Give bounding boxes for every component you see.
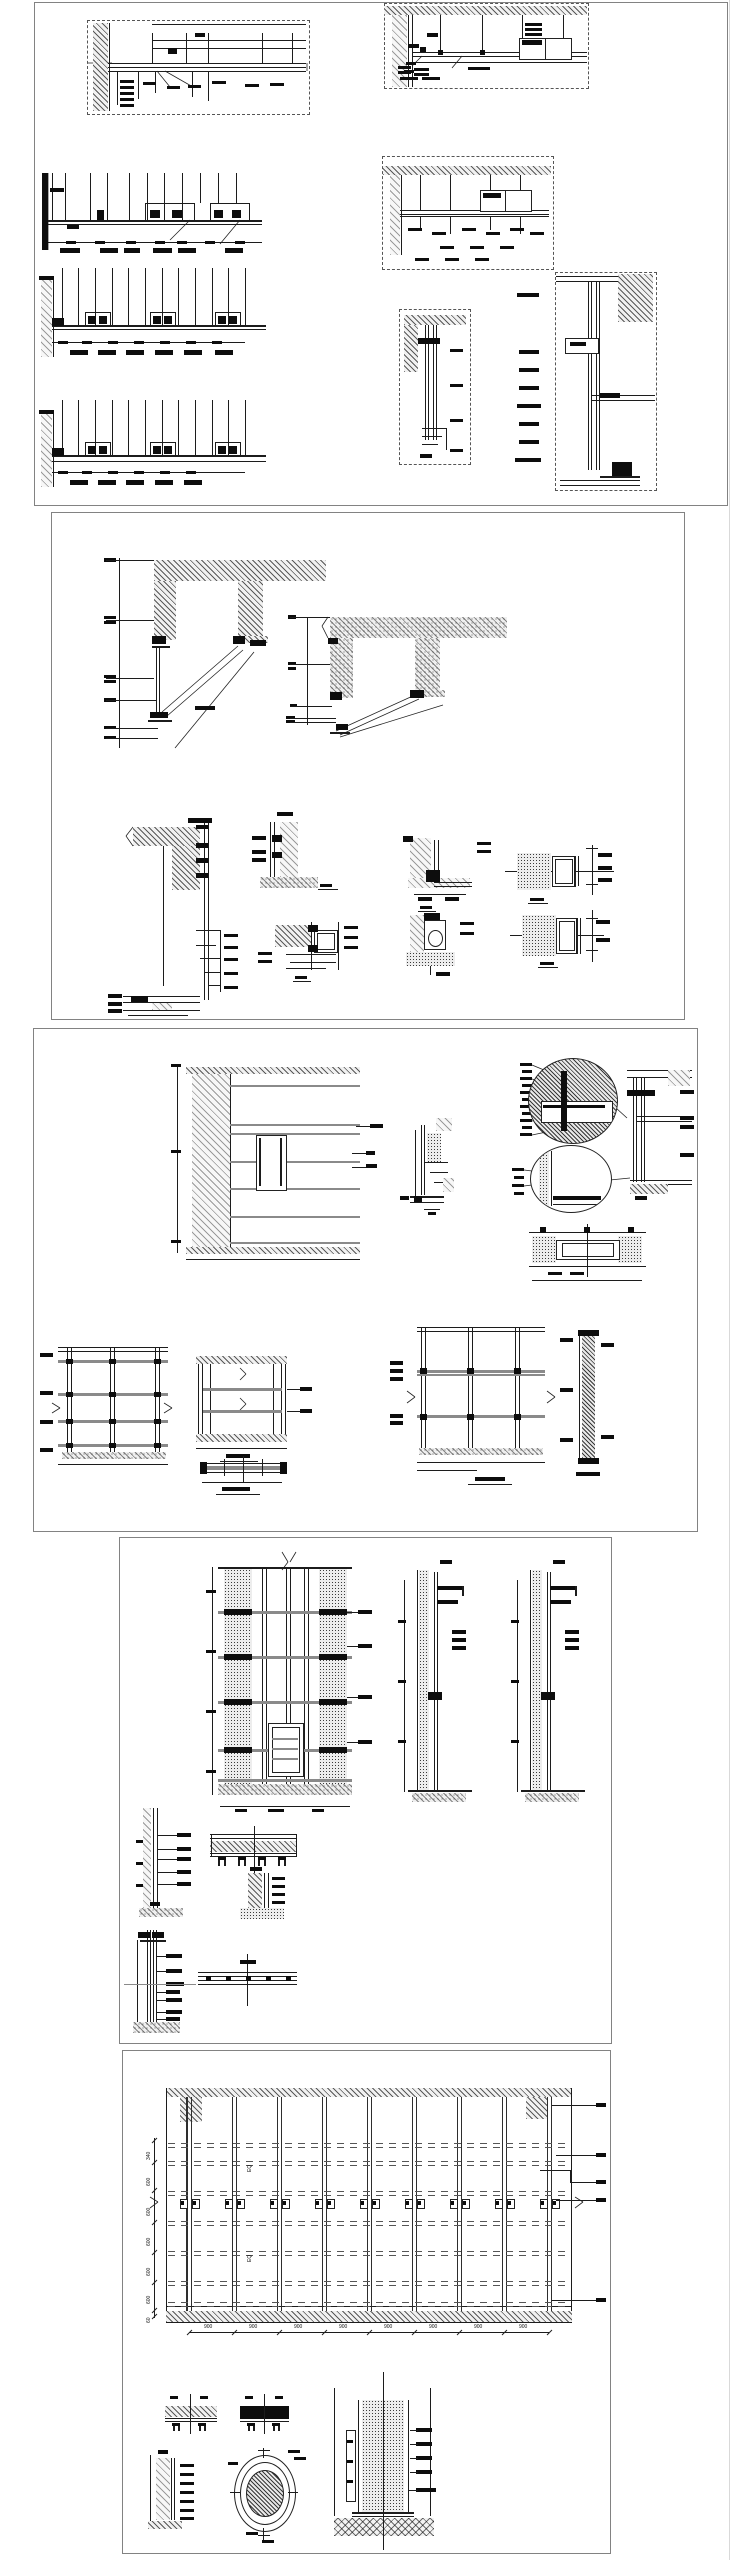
cad-line <box>417 1570 418 1790</box>
label-bar <box>514 1192 524 1195</box>
label-bar <box>480 50 485 55</box>
label-bar <box>570 1272 584 1275</box>
cad-line <box>52 325 266 327</box>
detail-bubble-hatched <box>528 1058 618 1144</box>
cad-line <box>556 2155 600 2156</box>
label-bar <box>104 616 116 619</box>
label-bar <box>432 232 446 235</box>
label-bar <box>167 86 180 89</box>
cad-line <box>243 1456 244 1482</box>
glazing-dashed-row <box>168 2302 570 2307</box>
label-bar <box>530 898 544 901</box>
cad-line <box>422 444 438 445</box>
cad-line <box>58 1347 168 1348</box>
label-bar <box>358 1740 372 1744</box>
cad-line <box>437 1572 438 1790</box>
label-bar <box>366 1164 377 1168</box>
label-bar <box>414 1196 422 1202</box>
label-bar <box>172 210 182 218</box>
cad-line <box>258 2450 270 2451</box>
cad-line <box>408 1790 472 1792</box>
cad-line <box>52 461 266 462</box>
cad-line <box>190 2394 191 2434</box>
label-bar <box>272 1877 285 1880</box>
cad-line <box>556 281 618 282</box>
cad-line <box>418 911 436 912</box>
cad-line <box>145 203 195 204</box>
label-bar <box>406 62 416 65</box>
hatch-region <box>238 581 263 640</box>
label-bar <box>414 68 429 71</box>
fastener-circle <box>428 930 443 947</box>
dim-label: EQ <box>248 2255 253 2262</box>
label-bar <box>177 1857 191 1861</box>
label-bar <box>460 922 474 925</box>
stipple-region <box>419 1448 543 1455</box>
detail-bubble <box>530 1145 612 1213</box>
label-bar <box>155 241 165 244</box>
label-bar <box>316 2201 319 2205</box>
cad-line <box>482 15 483 52</box>
cad-line <box>383 2372 384 2550</box>
label-bar <box>468 67 490 70</box>
label-bar <box>184 480 202 485</box>
cad-line <box>145 268 146 325</box>
cad-line <box>236 173 237 203</box>
cad-line <box>192 71 193 97</box>
label-bar <box>483 193 501 198</box>
label-bar <box>680 1090 694 1094</box>
label-bar <box>152 636 166 644</box>
cad-line <box>410 2458 418 2459</box>
cad-line <box>430 1172 448 1173</box>
label-bar <box>361 2201 364 2205</box>
label-bar <box>565 1630 579 1634</box>
label-bar <box>416 2470 432 2474</box>
label-bar <box>525 23 542 26</box>
hatch-region <box>404 315 466 325</box>
cad-line <box>259 1138 261 1186</box>
label-bar <box>295 976 307 979</box>
page-edge-line <box>729 0 730 2560</box>
dashed-edge <box>430 2388 431 2516</box>
label-bar <box>224 1609 252 1615</box>
label-bar <box>540 1227 546 1233</box>
label-bar <box>164 316 172 324</box>
cad-line <box>630 1180 692 1181</box>
label-bar <box>136 1884 143 1887</box>
label-bar <box>398 71 411 74</box>
label-bar <box>224 934 238 937</box>
cad-line <box>263 2528 264 2540</box>
cad-line <box>154 2138 155 2318</box>
cad-line-gray <box>230 1161 360 1163</box>
cad-sheet: 3406006006006006006090090090090090090090… <box>0 0 731 2560</box>
label-bar <box>408 228 422 231</box>
cad-line-gray <box>218 1779 352 1782</box>
label-bar <box>477 850 491 853</box>
cad-line <box>110 442 111 455</box>
cad-line <box>107 173 108 220</box>
hatch-region <box>165 2406 217 2417</box>
label-bar <box>440 246 454 249</box>
cad-line-gray <box>272 1758 298 1760</box>
cad-line <box>425 1162 448 1163</box>
cad-line <box>296 1834 297 1856</box>
label-bar <box>415 258 429 261</box>
glazing-dashed-row <box>168 2251 570 2256</box>
hatch-region <box>582 1336 595 1458</box>
cad-line <box>196 930 220 931</box>
label-bar <box>553 1560 565 1564</box>
stipple-region <box>412 1793 466 1802</box>
cad-line <box>560 480 640 481</box>
label-bar <box>596 2153 606 2157</box>
label-bar <box>186 341 196 344</box>
label-bar <box>154 1419 161 1424</box>
label-bar <box>418 338 440 344</box>
label-bar <box>560 1338 573 1342</box>
label-bar <box>450 349 463 352</box>
label-bar <box>160 471 170 474</box>
cad-line <box>425 1327 426 1450</box>
cad-line <box>230 2492 240 2493</box>
dim-label: 600 <box>147 2178 152 2186</box>
cad-line <box>245 268 246 325</box>
label-bar <box>224 1654 252 1660</box>
label-bar <box>218 316 226 324</box>
cad-line <box>198 1972 297 1973</box>
stipple-region <box>260 877 318 888</box>
cad-line <box>112 400 113 455</box>
hatch-region <box>410 915 424 952</box>
cad-line <box>285 1364 286 1434</box>
label-bar <box>428 1212 436 1215</box>
cad-line <box>148 720 172 722</box>
label-bar <box>541 2201 544 2205</box>
cad-line <box>599 282 600 470</box>
cad-line <box>278 2426 280 2431</box>
label-bar <box>188 818 212 823</box>
cad-line <box>592 845 593 895</box>
dim-label: 600 <box>147 2208 152 2216</box>
frame-box <box>317 933 335 950</box>
cad-line <box>204 972 220 973</box>
cad-line <box>468 1484 512 1485</box>
cad-line <box>48 224 262 225</box>
cad-line <box>196 945 216 946</box>
label-bar <box>109 1392 116 1397</box>
label-bar <box>288 2450 300 2453</box>
cad-line <box>163 846 164 986</box>
glazing-dashed-row <box>168 2191 570 2196</box>
cad-line <box>262 1459 263 1476</box>
cad-line <box>273 1364 274 1434</box>
label-bar <box>576 1472 600 1476</box>
cad-line <box>417 1470 477 1471</box>
label-bar <box>272 835 282 842</box>
cad-line <box>462 1586 464 1596</box>
hatch-region <box>166 2311 572 2322</box>
cad-line <box>106 700 156 701</box>
label-bar <box>319 1747 347 1753</box>
cad-line <box>352 1153 366 1154</box>
label-bar <box>224 972 238 975</box>
label-bar <box>229 316 237 324</box>
label-bar <box>452 1638 466 1642</box>
cad-line <box>434 886 472 887</box>
hatch-region <box>152 1003 172 1010</box>
cad-line <box>159 646 160 716</box>
cad-line <box>212 268 213 325</box>
cad-line <box>108 63 306 64</box>
label-bar <box>283 2201 286 2205</box>
label-bar <box>108 471 118 474</box>
cad-line <box>417 1462 545 1463</box>
hatch-region <box>172 846 200 890</box>
label-bar <box>252 850 266 854</box>
label-bar <box>420 47 426 52</box>
label-bar <box>347 2480 353 2483</box>
cad-line-gray <box>272 1738 298 1740</box>
label-bar <box>450 384 463 387</box>
label-bar <box>525 33 542 36</box>
cad-line <box>220 930 221 992</box>
cad-line <box>290 718 336 719</box>
hatch-region <box>186 1247 360 1254</box>
label-bar <box>517 404 541 408</box>
label-bar <box>344 926 358 929</box>
cad-line <box>424 1125 425 1195</box>
hatch-region <box>630 1184 668 1194</box>
cad-line <box>52 472 245 473</box>
label-bar <box>406 2201 409 2205</box>
label-bar <box>240 1960 256 1964</box>
cad-line <box>195 268 196 325</box>
label-bar <box>104 621 116 624</box>
label-bar <box>158 2450 168 2454</box>
cad-line <box>258 1860 260 1866</box>
label-bar <box>108 1002 122 1006</box>
cad-line <box>290 722 336 723</box>
label-bar <box>312 1809 324 1812</box>
label-bar <box>66 241 76 244</box>
label-bar <box>177 1882 191 1886</box>
cad-line <box>106 620 154 621</box>
cad-line <box>215 312 240 313</box>
cad-line <box>532 1280 642 1281</box>
cad-line <box>218 1860 220 1866</box>
hatch-region <box>275 925 311 947</box>
cad-line <box>204 2426 206 2431</box>
cad-line-gray <box>230 1216 360 1218</box>
label-bar <box>171 1064 181 1067</box>
cad-line <box>240 442 241 455</box>
dim-label: 900 <box>204 2325 212 2330</box>
cad-line-gray <box>417 1370 545 1373</box>
label-bar <box>366 1151 375 1155</box>
label-bar <box>519 350 539 354</box>
label-bar <box>452 1646 466 1650</box>
label-bar <box>177 1847 191 1851</box>
label-bar <box>252 836 266 840</box>
label-bar <box>168 48 177 54</box>
label-bar <box>420 906 432 909</box>
label-bar <box>180 2491 194 2494</box>
hatch-region <box>390 175 400 255</box>
label-bar <box>510 228 524 231</box>
cad-line <box>220 1461 258 1462</box>
label-bar <box>153 316 161 324</box>
cad-line <box>412 62 587 63</box>
cad-line <box>586 918 598 919</box>
label-bar <box>508 2201 511 2205</box>
cad-line <box>150 2455 151 2521</box>
cad-line <box>240 312 241 325</box>
hatch-region <box>618 274 653 322</box>
label-bar <box>245 84 259 87</box>
cad-line <box>199 2426 201 2431</box>
label-bar <box>52 448 64 456</box>
label-bar <box>598 878 612 882</box>
label-bar <box>601 1343 614 1347</box>
cad-line <box>578 856 579 886</box>
label-bar <box>120 92 134 95</box>
label-bar <box>195 33 205 37</box>
cad-line <box>574 856 575 886</box>
label-bar <box>266 1976 271 1981</box>
cad-line <box>410 2444 418 2445</box>
cad-line <box>157 1884 177 1885</box>
label-bar <box>418 897 432 901</box>
cad-line <box>420 175 421 210</box>
label-bar <box>228 2462 238 2465</box>
cad-line <box>249 203 250 220</box>
cad-line <box>157 1808 158 1908</box>
label-bar <box>268 1809 284 1812</box>
label-bar <box>196 873 208 878</box>
label-bar <box>272 1893 285 1896</box>
label-bar <box>390 1421 403 1425</box>
cad-line <box>162 400 163 455</box>
cad-line <box>165 2421 217 2422</box>
label-bar <box>155 480 173 485</box>
label-bar <box>437 1586 464 1590</box>
label-bar <box>550 1586 577 1590</box>
label-bar <box>40 1420 53 1424</box>
cad-line-gray <box>230 1133 360 1135</box>
cad-line-gray <box>230 1124 360 1126</box>
stipple-region <box>133 2022 180 2033</box>
cad-line <box>128 400 129 455</box>
cad-line <box>284 1860 286 1866</box>
cad-line <box>400 216 549 217</box>
label-bar <box>138 1932 150 1938</box>
cad-line <box>157 1835 177 1836</box>
label-bar <box>403 836 413 842</box>
label-bar <box>40 1448 53 1452</box>
dim-label: 600 <box>147 2268 152 2276</box>
cad-line <box>153 1930 154 2022</box>
cad-line <box>264 1860 266 1866</box>
cad-line <box>538 967 558 968</box>
cad-line <box>586 884 598 885</box>
label-bar <box>131 996 148 1002</box>
label-bar <box>294 2457 306 2460</box>
hatch-region <box>436 1118 452 1131</box>
cad-line <box>519 1327 520 1450</box>
label-bar <box>224 946 238 949</box>
label-bar <box>319 1654 347 1660</box>
frame-box <box>555 859 573 884</box>
cad-line <box>85 442 86 455</box>
label-bar <box>398 1620 406 1623</box>
label-bar <box>196 825 208 829</box>
cad-line <box>274 822 275 878</box>
label-bar <box>320 884 332 887</box>
crosshatch-region <box>334 2518 434 2536</box>
cad-line <box>62 268 63 325</box>
cad-line <box>156 1930 157 2022</box>
label-bar <box>134 341 144 344</box>
label-bar <box>420 1368 427 1374</box>
label-bar <box>451 2201 454 2205</box>
cad-line <box>164 173 165 220</box>
cad-line <box>208 71 209 101</box>
label-bar <box>275 2396 283 2399</box>
label-bar <box>154 1443 161 1448</box>
label-bar <box>427 33 438 37</box>
label-bar <box>206 1650 216 1653</box>
dim-label: 900 <box>429 2325 437 2330</box>
dim-label: 600 <box>147 2296 152 2304</box>
label-bar <box>206 1976 211 1981</box>
hatch-region <box>154 581 176 640</box>
cad-line <box>145 203 146 220</box>
stipple-region <box>240 1908 284 1919</box>
dim-label: 900 <box>474 2325 482 2330</box>
cad-line <box>78 400 79 455</box>
cad-line <box>106 728 158 729</box>
cad-line <box>401 175 402 255</box>
label-bar <box>67 225 79 229</box>
label-bar <box>515 458 541 462</box>
cad-line <box>52 173 53 220</box>
cad-line <box>123 1010 200 1011</box>
label-bar <box>200 1462 207 1474</box>
label-bar <box>108 994 122 998</box>
label-bar <box>530 232 544 235</box>
label-bar <box>578 1458 599 1464</box>
label-bar <box>152 1932 164 1938</box>
cad-line <box>178 268 179 325</box>
label-bar <box>108 1009 122 1013</box>
label-bar <box>178 248 196 253</box>
cad-line <box>417 1331 545 1332</box>
cad-line <box>85 312 110 313</box>
hatch-region <box>41 414 52 487</box>
cad-line <box>210 1364 211 1434</box>
label-bar <box>426 870 440 882</box>
cad-line <box>421 1125 422 1195</box>
label-bar <box>98 480 116 485</box>
label-bar <box>226 1976 231 1981</box>
label-bar <box>215 350 233 355</box>
label-bar <box>598 853 612 857</box>
cad-line <box>591 282 592 470</box>
label-bar <box>235 1809 247 1812</box>
label-bar <box>512 1184 524 1187</box>
